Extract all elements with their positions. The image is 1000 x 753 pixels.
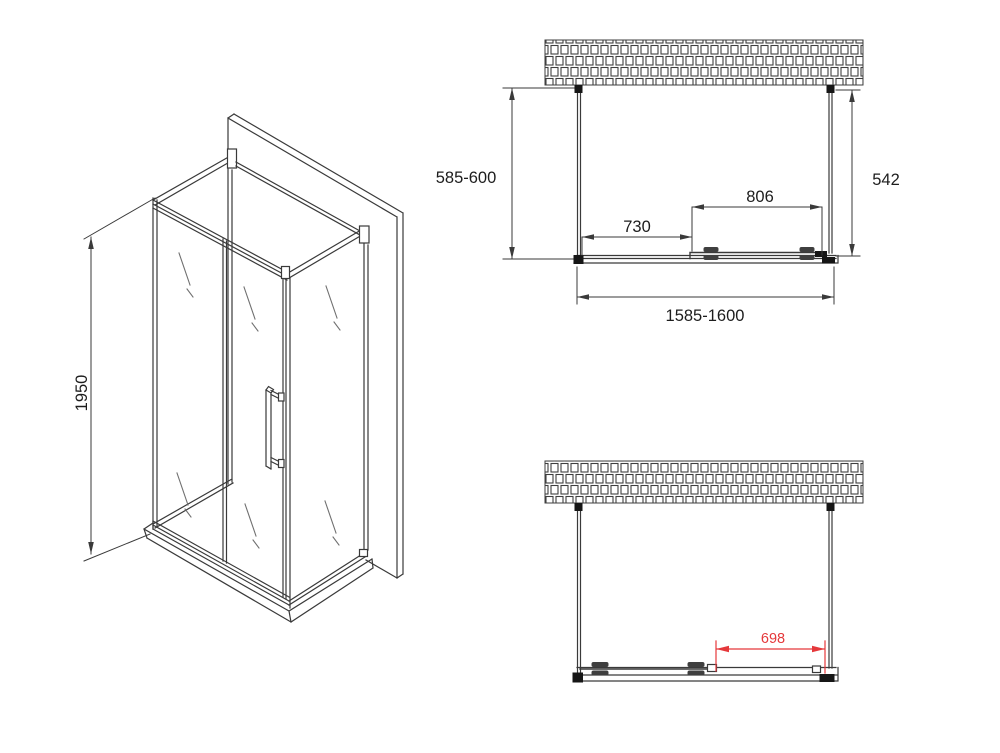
iso-door-handle [266, 387, 284, 470]
iso-glass-shine-marks [177, 253, 340, 548]
iso-left-panel [153, 149, 237, 529]
plan-view-closed [503, 40, 863, 304]
open-front-rail [573, 662, 839, 683]
iso-front-face [153, 200, 290, 608]
plan-front-rail [574, 247, 839, 264]
dim-label-fixed-panel: 730 [623, 218, 651, 236]
wall-hatch-top [545, 40, 863, 85]
open-left-panel [575, 503, 583, 672]
iso-back-rail [236, 162, 360, 235]
dim-label-total-width: 1585-1600 [666, 307, 745, 325]
iso-base-tray [144, 523, 373, 622]
open-right-panel [827, 503, 835, 668]
dim-label-right-depth: 542 [872, 171, 900, 189]
dim-label-opening: 698 [761, 631, 785, 647]
plan-dimensions [503, 88, 860, 304]
technical-drawing-canvas: 1950 585-600 542 806 730 1585-1600 698 [0, 0, 1000, 753]
plan-right-panel [827, 85, 835, 253]
dim-label-left-depth: 585-600 [436, 169, 497, 187]
dim-label-height: 1950 [73, 375, 91, 412]
dim-label-sliding-door: 806 [746, 188, 774, 206]
plan-view-open [545, 461, 863, 683]
iso-right-panel [288, 226, 369, 605]
wall-hatch-bottom [545, 461, 863, 503]
drawing-svg: 1950 585-600 542 806 730 1585-1600 698 [0, 0, 1000, 753]
iso-dimension-height [84, 198, 155, 561]
isometric-view [84, 114, 403, 622]
plan-left-panel [575, 85, 583, 256]
iso-back-wall [228, 114, 403, 578]
